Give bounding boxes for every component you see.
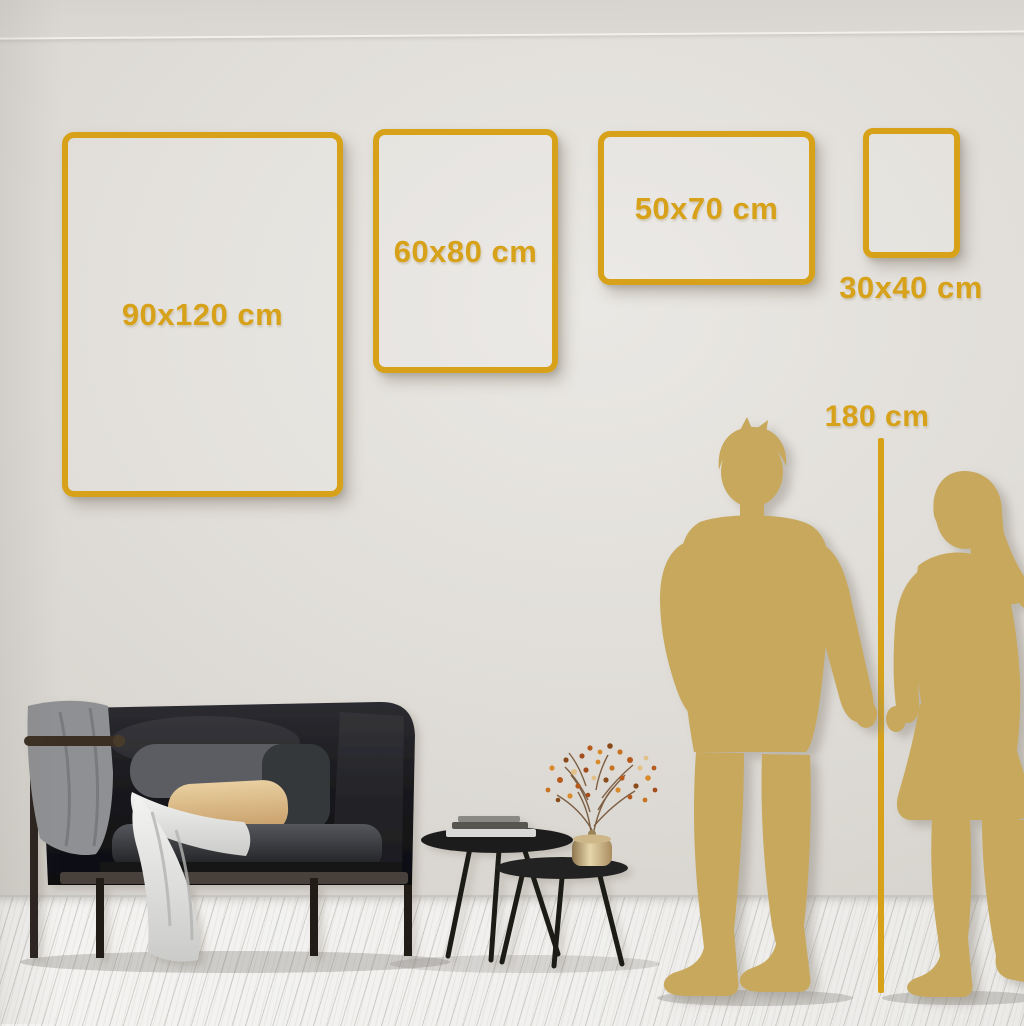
height-marker-label: 180 cm [777,402,977,432]
frame-30x40 [863,128,960,258]
frame-60x80: 60x80 cm [373,129,558,373]
wood-floor [0,895,1024,1026]
frame-90x120: 90x120 cm [62,132,343,497]
frame-50x70: 50x70 cm [598,131,815,285]
frame-30x40-label: 30x40 cm [811,272,1011,303]
height-measure-line [878,438,884,993]
frame-90x120-label: 90x120 cm [122,299,283,330]
frame-50x70-label: 50x70 cm [635,193,779,224]
frame-60x80-label: 60x80 cm [394,236,538,267]
